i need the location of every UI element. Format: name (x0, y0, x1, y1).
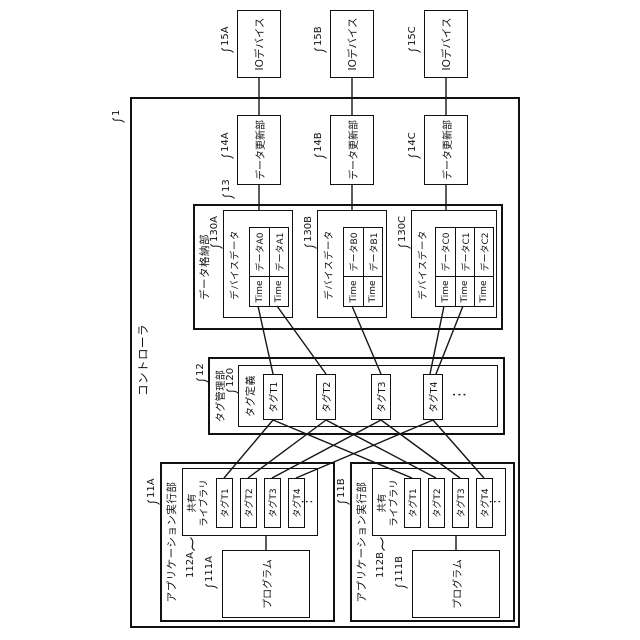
tag-definition-title: タグ定義 (242, 366, 257, 426)
record-row: Time データB0 (344, 228, 363, 306)
record-value-cell: データC1 (456, 228, 474, 276)
program-box-111A: プログラム (222, 550, 310, 618)
ref-leader-squiggle-icon (408, 47, 421, 54)
ref-leader-squiggle-icon (222, 193, 235, 200)
io-device-box-15A: IOデバイス (237, 10, 281, 78)
record-row: Time データC2 (474, 228, 493, 306)
data-updater-box-14A: データ更新部 (237, 115, 281, 185)
record-time-cell: Time (344, 276, 363, 306)
device-data-title: デバイスデータ (321, 213, 335, 317)
ref-label-15A: 15A (220, 26, 234, 54)
shared-library-name-line2: ライブラリ (389, 479, 400, 527)
library-tag-ellipsis: ⋮ (489, 495, 502, 508)
tag-chip-T1: タグT1 (263, 374, 283, 420)
ref-label-1: 1 (111, 110, 125, 124)
device-data-records: Time データC0 Time データC1 Time データC2 (435, 227, 494, 307)
device-data-title: デバイスデータ (415, 213, 429, 317)
data-updater-label: データ更新部 (345, 120, 360, 180)
record-value-cell: データA0 (250, 228, 269, 276)
ref-leader-squiggle-icon (226, 388, 239, 395)
ref-label-13: 13 (221, 179, 235, 200)
ref-label-14A: 14A (220, 132, 234, 160)
record-value-cell: データA1 (270, 228, 288, 276)
ref-label-120: 120 (225, 368, 239, 395)
record-row: Time データC1 (455, 228, 474, 306)
tag-chip-T3: タグT3 (371, 374, 391, 420)
shared-library-name: 共有 ライブラリ (377, 471, 400, 535)
ref-leader-squiggle-icon (398, 243, 411, 250)
ref-label-15C: 15C (407, 26, 421, 54)
record-time-cell: Time (475, 276, 493, 306)
library-tag-chip-T2: タグT2 (428, 478, 445, 528)
ref-label-111A: 111A (204, 556, 218, 590)
ref-leader-squiggle-icon (205, 583, 218, 590)
ref-label-14B: 14B (313, 132, 327, 160)
data-updater-box-14C: データ更新部 (424, 115, 468, 185)
device-data-box-130C: デバイスデータ Time データC0 Time データC1 Time データC2 (411, 210, 497, 318)
io-device-box-15B: IOデバイス (330, 10, 374, 78)
data-updater-label: データ更新部 (252, 120, 267, 180)
controller-title: コントローラ (135, 318, 151, 402)
ref-leader-squiggle-icon (112, 117, 125, 124)
shared-library-name-line1: 共有 (187, 494, 198, 513)
data-updater-label: データ更新部 (439, 120, 454, 180)
ref-leader-squiggle-icon (210, 243, 223, 250)
data-updater-box-14B: データ更新部 (330, 115, 374, 185)
ref-label-11A: 11A (146, 478, 160, 506)
record-value-cell: データC2 (475, 228, 493, 276)
io-device-label: IOデバイス (439, 17, 454, 70)
app-executor-title: アプリケーション実行部 (164, 464, 179, 620)
program-box-111B: プログラム (412, 550, 500, 618)
record-row: Time データA0 (250, 228, 269, 306)
library-tag-chip-T2: タグT2 (240, 478, 257, 528)
record-time-cell: Time (364, 276, 382, 306)
ref-label-11B: 11B (336, 478, 350, 506)
ref-leader-squiggle-icon (196, 377, 209, 384)
program-label: プログラム (449, 559, 464, 609)
program-label: プログラム (259, 559, 274, 609)
ref-leader-squiggle-icon (304, 243, 317, 250)
ref-leader-squiggle-icon (221, 47, 234, 54)
record-value-cell: データB1 (364, 228, 382, 276)
ref-leader-squiggle-icon (147, 499, 160, 506)
record-value-cell: データC0 (436, 228, 455, 276)
shared-library-name-line2: ライブラリ (199, 479, 210, 527)
record-time-cell: Time (436, 276, 455, 306)
device-data-box-130B: デバイスデータ Time データB0 Time データB1 (317, 210, 387, 318)
ref-label-130B: 130B (303, 216, 317, 250)
tag-chip-T4: タグT4 (423, 374, 443, 420)
device-data-box-130A: デバイスデータ Time データA0 Time データA1 (223, 210, 293, 318)
library-tag-ellipsis: ⋮ (301, 495, 314, 508)
record-row: Time データA1 (269, 228, 288, 306)
tag-list-ellipsis: ⋮ (452, 387, 467, 402)
io-device-label: IOデバイス (345, 17, 360, 70)
record-row: Time データB1 (363, 228, 382, 306)
ref-label-111B: 111B (394, 556, 408, 590)
ref-leader-squiggle-icon (408, 153, 421, 160)
patent-figure: コントローラ IOデバイス IOデバイス IOデバイス データ更新部 データ更新… (0, 0, 640, 640)
record-time-cell: Time (250, 276, 269, 306)
ref-label-130A: 130A (209, 216, 223, 250)
io-device-label: IOデバイス (252, 17, 267, 70)
ref-leader-squiggle-icon (395, 583, 408, 590)
ref-leader-wave-icon (378, 537, 387, 551)
ref-leader-squiggle-icon (337, 499, 350, 506)
device-data-records: Time データA0 Time データA1 (249, 227, 289, 307)
shared-library-name: 共有 ライブラリ (187, 471, 210, 535)
record-row: Time データC0 (436, 228, 455, 306)
ref-label-12: 12 (195, 363, 209, 384)
library-tag-chip-T1: タグT1 (216, 478, 233, 528)
library-tag-chip-T1: タグT1 (404, 478, 421, 528)
figure-rotated-canvas: コントローラ IOデバイス IOデバイス IOデバイス データ更新部 データ更新… (0, 0, 640, 640)
app-executor-title: アプリケーション実行部 (354, 464, 369, 620)
ref-leader-wave-icon (188, 537, 197, 551)
ref-leader-squiggle-icon (314, 47, 327, 54)
shared-library-name-line1: 共有 (377, 494, 388, 513)
ref-label-112A: 112A (185, 537, 197, 578)
device-data-title: デバイスデータ (227, 213, 241, 317)
record-time-cell: Time (270, 276, 288, 306)
ref-label-15B: 15B (313, 26, 327, 54)
tag-chip-T2: タグT2 (316, 374, 336, 420)
device-data-records: Time データB0 Time データB1 (343, 227, 383, 307)
record-value-cell: データB0 (344, 228, 363, 276)
ref-label-130C: 130C (397, 216, 411, 250)
ref-leader-squiggle-icon (314, 153, 327, 160)
io-device-box-15C: IOデバイス (424, 10, 468, 78)
record-time-cell: Time (456, 276, 474, 306)
ref-label-112B: 112B (375, 537, 387, 578)
library-tag-chip-T3: タグT3 (264, 478, 281, 528)
library-tag-chip-T3: タグT3 (452, 478, 469, 528)
ref-leader-squiggle-icon (221, 153, 234, 160)
ref-label-14C: 14C (407, 132, 421, 160)
